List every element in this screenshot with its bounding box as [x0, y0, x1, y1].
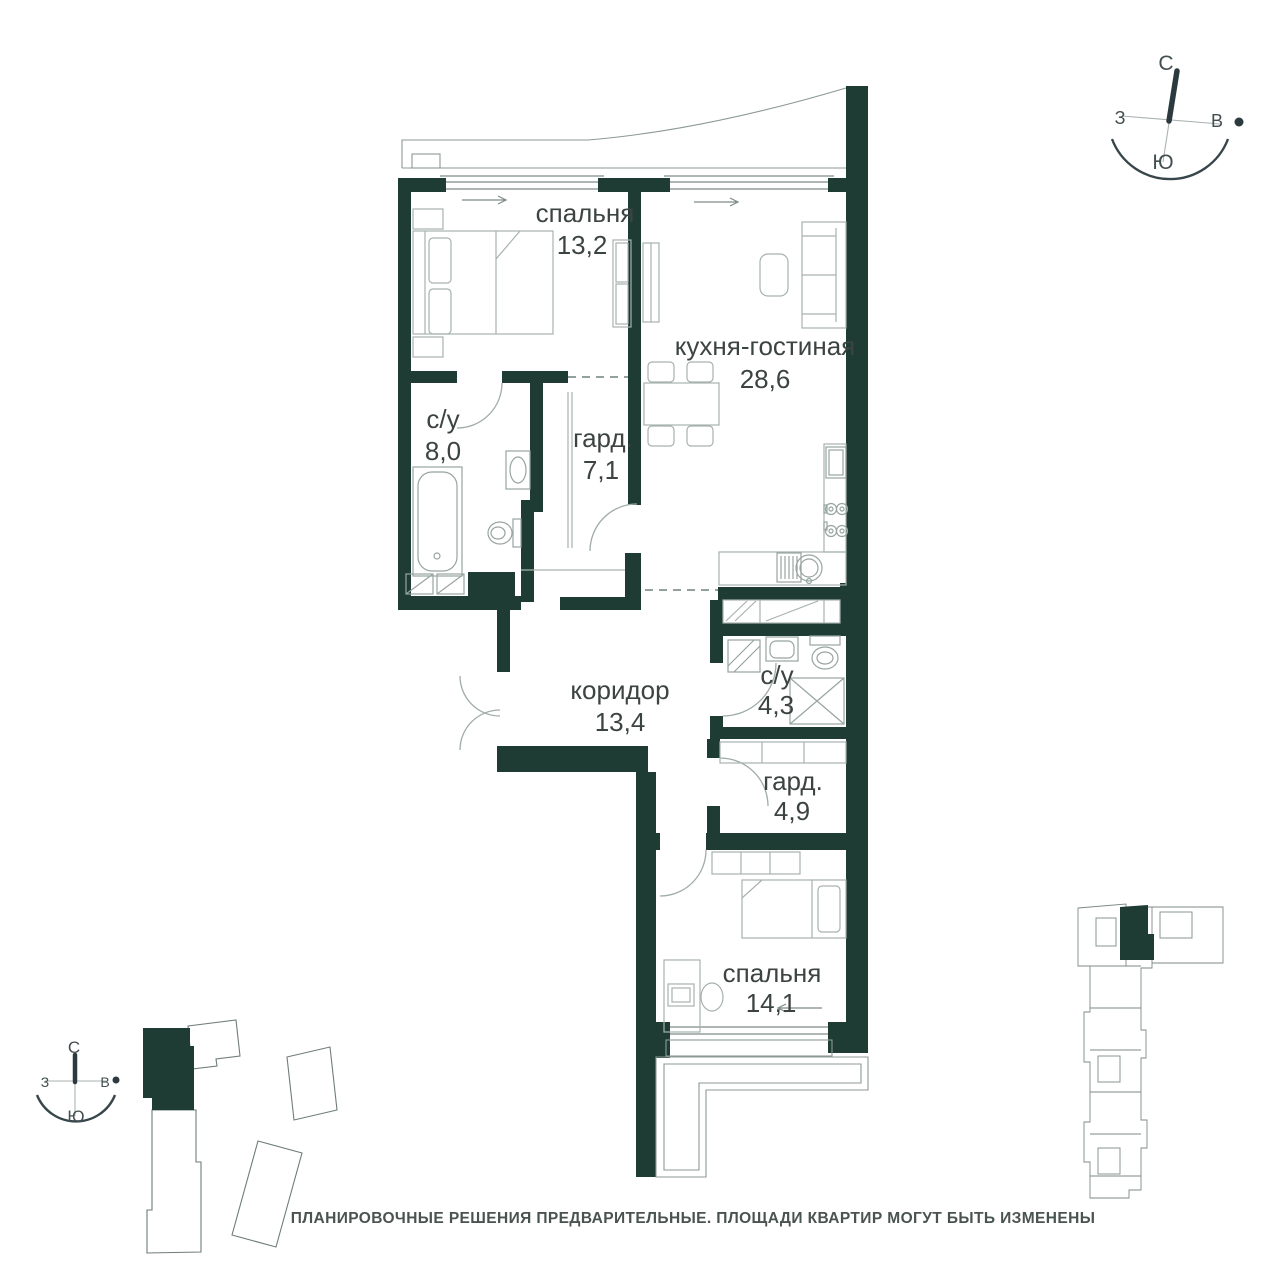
compass-south: Ю: [1152, 151, 1173, 174]
shower-icon: [790, 678, 844, 724]
compass-north: С: [1158, 52, 1173, 75]
floor-plan-image: спальня 13,2 кухня-гостиная 28,6 с/у 8,0…: [0, 0, 1280, 1280]
dish-rack-icon: [777, 553, 801, 582]
chair-icon: [648, 362, 674, 382]
chair-icon: [701, 983, 723, 1011]
room-name: гард.: [763, 766, 823, 796]
compass-west: З: [1115, 108, 1126, 128]
compass-east: В: [100, 1074, 109, 1090]
washing-machine-icon: [728, 640, 760, 672]
balcony-outline: [656, 1057, 868, 1177]
room-name: гард.: [573, 423, 633, 453]
coffee-table-icon: [760, 254, 788, 296]
chair-icon: [687, 362, 713, 382]
floorplan-page: спальня 13,2 кухня-гостиная 28,6 с/у 8,0…: [0, 0, 1280, 1280]
sink-icon: [506, 451, 530, 489]
room-name: с/у: [426, 404, 459, 434]
kitchen-counter: [719, 552, 846, 585]
nightstand-icon: [413, 209, 443, 229]
toilet-icon: [488, 519, 521, 547]
room-area: 28,6: [740, 364, 791, 394]
walls: [398, 86, 868, 1177]
room-area: 7,1: [583, 455, 619, 485]
chair-icon: [648, 426, 674, 446]
laundry-niche: [406, 574, 464, 594]
east-dot: [113, 1077, 120, 1084]
compass-north: С: [68, 1038, 80, 1057]
desk-icon: [664, 960, 700, 1032]
compass-west: З: [41, 1074, 49, 1090]
compass-icon-mini: С Ю З В: [37, 1038, 120, 1126]
chair-icon: [687, 426, 713, 446]
sink-icon: [796, 555, 822, 584]
disclaimer-text: ПЛАНИРОВОЧНЫЕ РЕШЕНИЯ ПРЕДВАРИТЕЛЬНЫЕ. П…: [291, 1210, 1096, 1227]
closet-icon: [712, 852, 800, 874]
toilet-icon: [810, 636, 840, 669]
room-area: 13,2: [557, 230, 608, 260]
room-name: коридор: [570, 675, 669, 705]
furniture-wardrobe-2: [720, 742, 846, 763]
room-name: кухня-гостиная: [675, 331, 855, 361]
bathtub-icon: [413, 467, 462, 576]
compass-icon-main: С Ю З В: [1112, 52, 1244, 179]
room-area: 13,4: [595, 707, 646, 737]
dining-table-icon: [644, 383, 719, 425]
room-area: 14,1: [746, 988, 797, 1018]
closet-row: [723, 600, 840, 623]
room-area: 8,0: [425, 436, 461, 466]
compass-east: В: [1211, 111, 1223, 131]
east-dot: [1235, 118, 1244, 127]
sink-icon: [766, 637, 798, 661]
furniture-kitchen-living: [643, 222, 848, 585]
room-name: с/у: [760, 660, 793, 690]
room-name: спальня: [723, 958, 822, 988]
nightstand-icon: [413, 337, 443, 357]
compass-south: Ю: [67, 1107, 84, 1126]
room-name: спальня: [536, 198, 635, 228]
bed-icon: [742, 880, 846, 938]
terrace-outline: [402, 88, 846, 168]
room-area: 4,9: [774, 796, 810, 826]
stove-icon: [824, 504, 848, 537]
floor-plate: [1078, 904, 1223, 1198]
site-plan-highlighted-building: [143, 1028, 194, 1110]
room-area: 4,3: [758, 690, 794, 720]
